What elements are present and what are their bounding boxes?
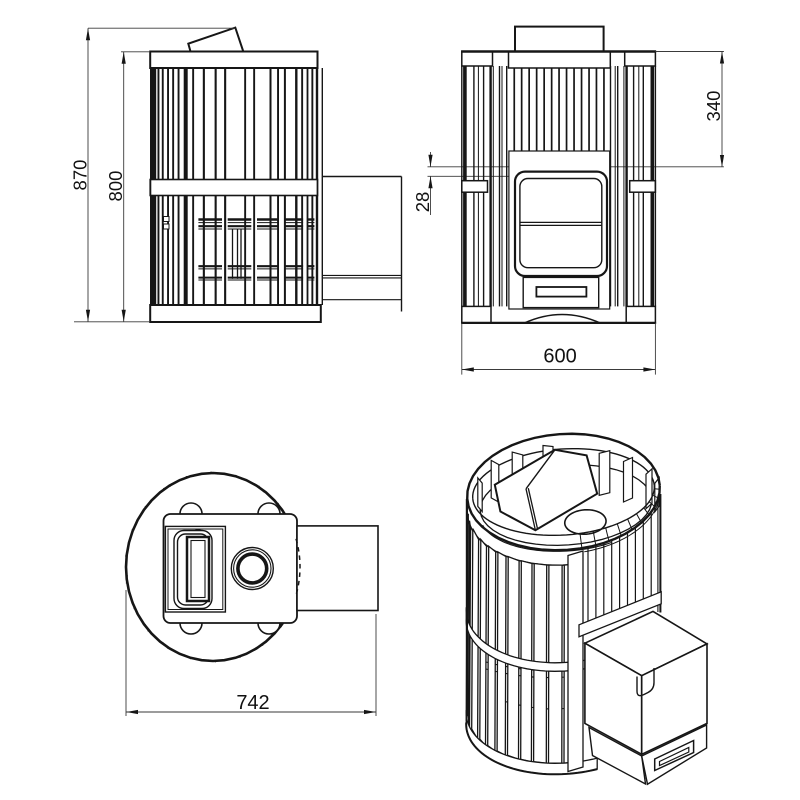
svg-text:340: 340 <box>703 91 724 122</box>
svg-text:600: 600 <box>543 346 576 368</box>
svg-text:742: 742 <box>236 692 269 714</box>
svg-text:28: 28 <box>412 192 433 213</box>
svg-text:870: 870 <box>69 160 90 191</box>
svg-text:800: 800 <box>105 171 126 202</box>
